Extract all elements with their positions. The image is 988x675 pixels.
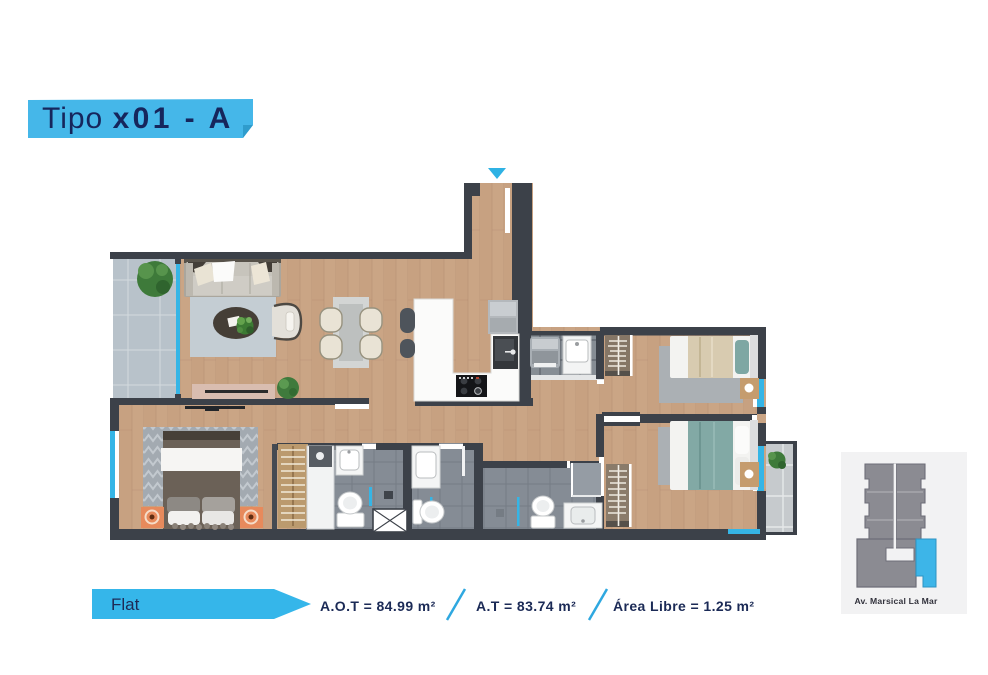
svg-text:Av. Marsical La Mar: Av. Marsical La Mar	[854, 596, 938, 606]
svg-text:Tipo x01 - A: Tipo x01 - A	[42, 102, 234, 135]
svg-text:Área Libre = 1.25 m²: Área Libre = 1.25 m²	[613, 598, 754, 614]
svg-text:A.T = 83.74 m²: A.T = 83.74 m²	[476, 598, 576, 614]
svg-text:Flat: Flat	[111, 595, 140, 614]
svg-text:A.O.T = 84.99 m²: A.O.T = 84.99 m²	[320, 598, 436, 614]
